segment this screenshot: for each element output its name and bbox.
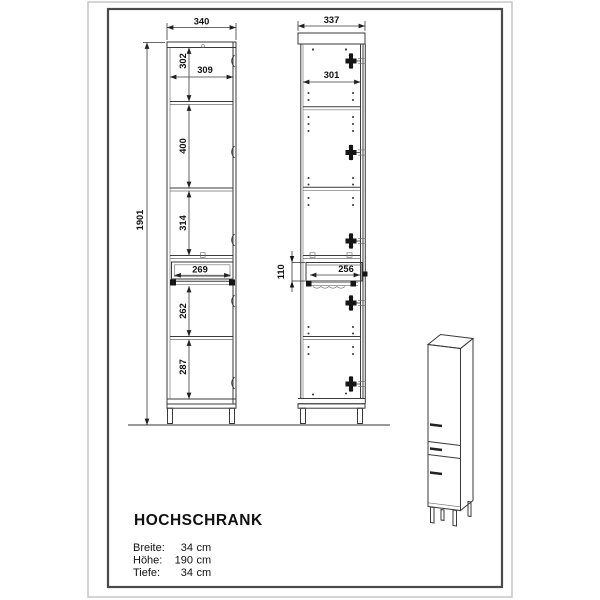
dim-compartment-3: 314 <box>178 214 188 230</box>
dim-compartment-5: 287 <box>178 359 188 375</box>
spec-unit: cm <box>197 542 212 554</box>
spec-unit: cm <box>197 555 212 567</box>
dim-overall-depth: 337 <box>324 15 340 25</box>
product-title: HOCHSCHRANK <box>134 512 263 529</box>
dim-drawer-width: 269 <box>192 265 208 275</box>
spec-value: 190 <box>175 555 193 567</box>
dim-compartment-4: 262 <box>178 303 188 319</box>
drawer-runner-end <box>170 280 176 286</box>
spec-label: Höhe: <box>133 555 162 567</box>
page-outer-border <box>88 2 512 597</box>
dim-inner-depth: 301 <box>324 70 340 80</box>
spec-label: Tiefe: <box>133 567 160 579</box>
dim-drawer-height: 110 <box>276 264 286 279</box>
technical-drawing-canvas: 340 1901 302 309 400 314 269 262 287 <box>0 0 600 600</box>
spec-value: 34 <box>181 542 193 554</box>
dim-shelf-width: 309 <box>197 65 213 75</box>
spec-label: Breite: <box>133 542 165 554</box>
spec-value: 34 <box>181 567 193 579</box>
dim-compartment-1: 302 <box>178 53 188 69</box>
dim-overall-width: 340 <box>194 17 210 27</box>
drawer-knob <box>363 272 368 277</box>
drawer-runner-end <box>229 280 235 286</box>
dim-drawer-depth: 256 <box>338 264 354 274</box>
dim-overall-height: 1901 <box>135 210 145 231</box>
dim-compartment-2: 400 <box>178 138 188 154</box>
spec-unit: cm <box>197 567 212 579</box>
